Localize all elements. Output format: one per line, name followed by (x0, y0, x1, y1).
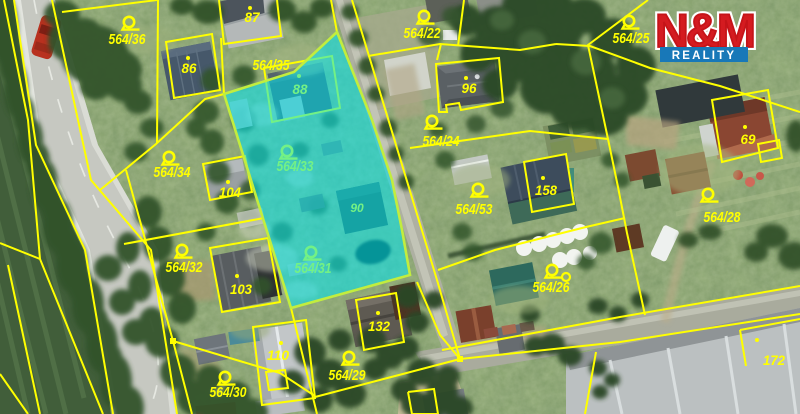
svg-text:564/22: 564/22 (404, 26, 441, 42)
svg-text:96: 96 (462, 81, 477, 96)
svg-text:564/53: 564/53 (456, 202, 493, 218)
svg-text:564/26: 564/26 (533, 280, 571, 296)
svg-text:103: 103 (230, 282, 252, 297)
svg-text:172: 172 (763, 353, 785, 368)
svg-text:REALITY: REALITY (672, 50, 737, 62)
svg-text:110: 110 (267, 348, 289, 363)
svg-text:564/30: 564/30 (210, 385, 247, 401)
svg-text:564/25: 564/25 (613, 31, 651, 47)
svg-text:69: 69 (741, 132, 756, 147)
svg-text:564/28: 564/28 (704, 210, 742, 226)
svg-text:564/34: 564/34 (154, 165, 191, 181)
svg-text:132: 132 (368, 319, 390, 334)
svg-text:564/35: 564/35 (253, 58, 291, 74)
svg-text:564/36: 564/36 (109, 32, 147, 48)
svg-text:104: 104 (219, 185, 241, 200)
svg-text:86: 86 (182, 61, 197, 76)
svg-text:87: 87 (245, 10, 261, 25)
svg-text:564/32: 564/32 (166, 260, 203, 276)
svg-text:564/24: 564/24 (423, 134, 460, 150)
svg-text:158: 158 (535, 183, 557, 198)
svg-text:564/29: 564/29 (329, 368, 366, 384)
